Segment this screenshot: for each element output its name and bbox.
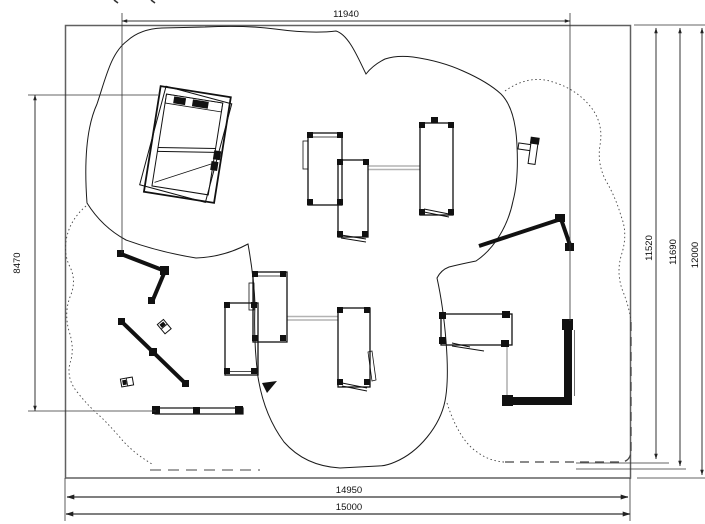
equipment-balance-beam-horizontal xyxy=(152,406,243,414)
safety-zone-solid-outline xyxy=(86,26,518,468)
equipment-tower-bridge-center xyxy=(224,271,376,393)
dim-label-bottom-15000: 15000 xyxy=(336,502,362,513)
equipment-tilted-climber xyxy=(140,86,232,203)
cropped-text-fragment xyxy=(114,0,155,3)
safety-zone-dotted-outline xyxy=(66,79,631,470)
equipment-balance-beam-bent xyxy=(117,250,169,304)
site-plan-drawing: 11940 8470 11520 11690 12000 14950 15000 xyxy=(0,0,705,524)
equipment-spring-toy xyxy=(516,135,540,165)
plan-canvas: 11940 8470 11520 11690 12000 14950 15000 xyxy=(0,0,705,524)
equipment-stepping-pod xyxy=(157,319,171,333)
extension-lines xyxy=(28,13,705,521)
tower-posts xyxy=(224,271,370,385)
equipment-stepping-pod xyxy=(120,377,133,387)
dim-label-top-width: 11940 xyxy=(333,9,359,20)
dim-label-left-height: 8470 xyxy=(12,252,23,273)
dim-label-right-11520: 11520 xyxy=(644,235,655,261)
dim-label-right-12000: 12000 xyxy=(690,242,701,268)
dim-label-right-11690: 11690 xyxy=(668,239,679,265)
site-boundary xyxy=(66,26,631,479)
equipment-tower-bridge-north xyxy=(303,117,454,242)
tower-posts xyxy=(307,117,454,237)
dim-label-bottom-14950: 14950 xyxy=(336,485,362,496)
l-frame-horizontal-bar xyxy=(504,397,572,405)
l-frame-vertical-bar xyxy=(564,321,572,405)
equipment-balance-beam-diagonal xyxy=(118,318,189,387)
equipment-swing-unit xyxy=(439,311,575,406)
